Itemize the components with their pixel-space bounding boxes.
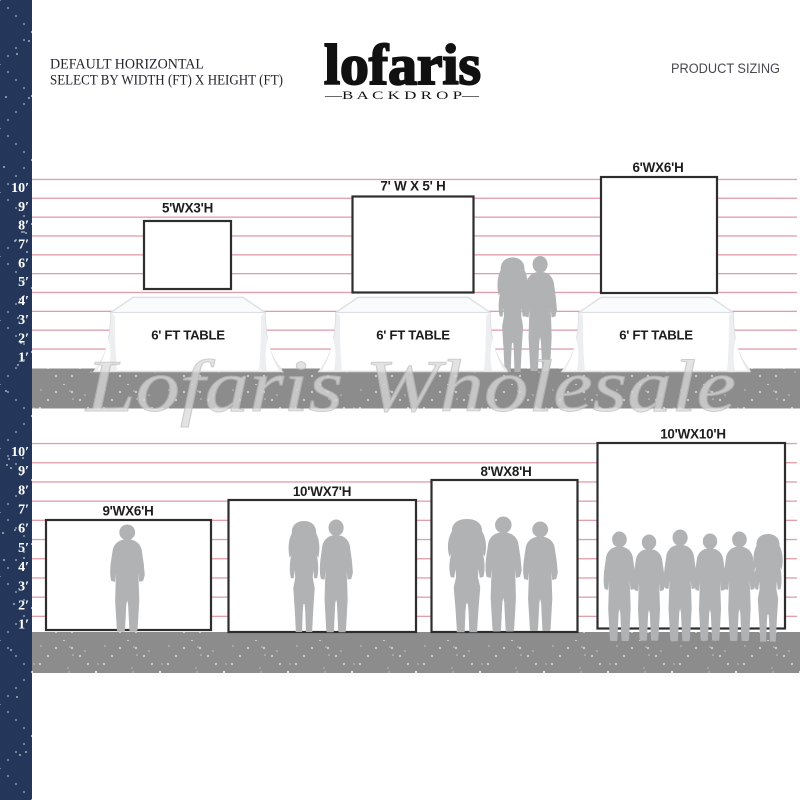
svg-text:6' FT TABLE: 6' FT TABLE <box>376 328 450 343</box>
svg-text:1′: 1′ <box>18 618 29 633</box>
svg-text:10'WX10'H: 10'WX10'H <box>660 427 726 442</box>
svg-text:9′: 9′ <box>18 464 29 479</box>
svg-text:10′: 10′ <box>11 181 29 196</box>
svg-text:1′: 1′ <box>18 351 29 366</box>
svg-text:3′: 3′ <box>18 313 29 328</box>
svg-text:DEFAULT HORIZONTAL: DEFAULT HORIZONTAL <box>50 57 204 73</box>
svg-text:6'WX6'H: 6'WX6'H <box>632 160 683 175</box>
svg-text:7' W X 5' H: 7' W X 5' H <box>380 179 445 194</box>
svg-text:6′: 6′ <box>18 522 29 537</box>
svg-text:4′: 4′ <box>18 560 29 575</box>
svg-text:10′: 10′ <box>11 445 29 460</box>
svg-text:5′: 5′ <box>18 541 29 556</box>
svg-text:8′: 8′ <box>18 219 29 234</box>
svg-text:6' FT TABLE: 6' FT TABLE <box>619 328 693 343</box>
svg-text:4′: 4′ <box>18 294 29 309</box>
svg-text:6' FT TABLE: 6' FT TABLE <box>151 328 225 343</box>
svg-text:7′: 7′ <box>18 238 29 253</box>
svg-text:SELECT BY WIDTH (FT) X HEIGHT: SELECT BY WIDTH (FT) X HEIGHT (FT) <box>50 73 283 89</box>
svg-text:9′: 9′ <box>18 200 29 215</box>
svg-text:3′: 3′ <box>18 579 29 594</box>
svg-text:Lofaris Wholesale: Lofaris Wholesale <box>85 346 736 428</box>
svg-text:7′: 7′ <box>18 503 29 518</box>
svg-text:PRODUCT SIZING: PRODUCT SIZING <box>671 61 780 76</box>
svg-text:—B A C K D R O P—: —B A C K D R O P— <box>324 88 481 102</box>
svg-text:8′: 8′ <box>18 483 29 498</box>
svg-text:2′: 2′ <box>18 332 29 347</box>
svg-text:9'WX6'H: 9'WX6'H <box>102 504 153 519</box>
svg-text:8'WX8'H: 8'WX8'H <box>480 464 531 479</box>
svg-text:6′: 6′ <box>18 256 29 271</box>
svg-text:10'WX7'H: 10'WX7'H <box>293 484 351 499</box>
svg-text:5′: 5′ <box>18 275 29 290</box>
svg-text:2′: 2′ <box>18 599 29 614</box>
svg-text:5'WX3'H: 5'WX3'H <box>162 201 213 216</box>
